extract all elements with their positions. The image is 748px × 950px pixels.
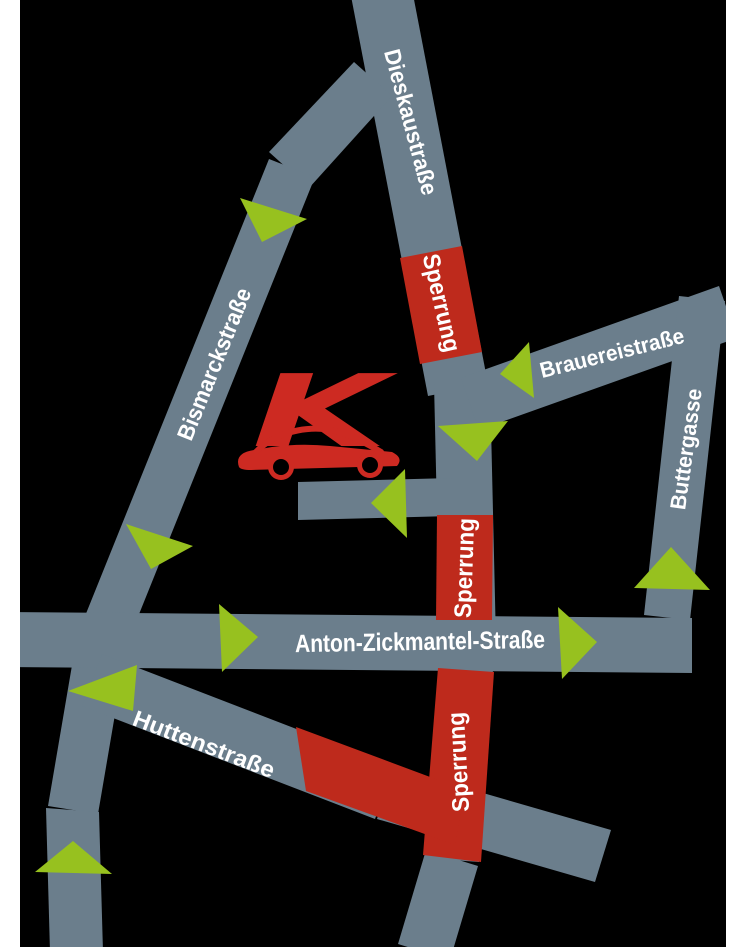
label-sperrung-south: Sperrung <box>443 711 475 812</box>
logo-car-tire <box>273 459 289 475</box>
dealership-logo: K <box>238 353 400 480</box>
label-anton-zickmantel: Anton-Zickmantel-Straße <box>295 626 546 658</box>
detour-map: DieskaustraßeSperrungBrauereistraßeButte… <box>0 0 748 950</box>
label-sperrung-mid: Sperrung <box>450 518 480 619</box>
logo-car-tire <box>362 457 378 473</box>
street-bismarck-bottom <box>46 808 103 950</box>
